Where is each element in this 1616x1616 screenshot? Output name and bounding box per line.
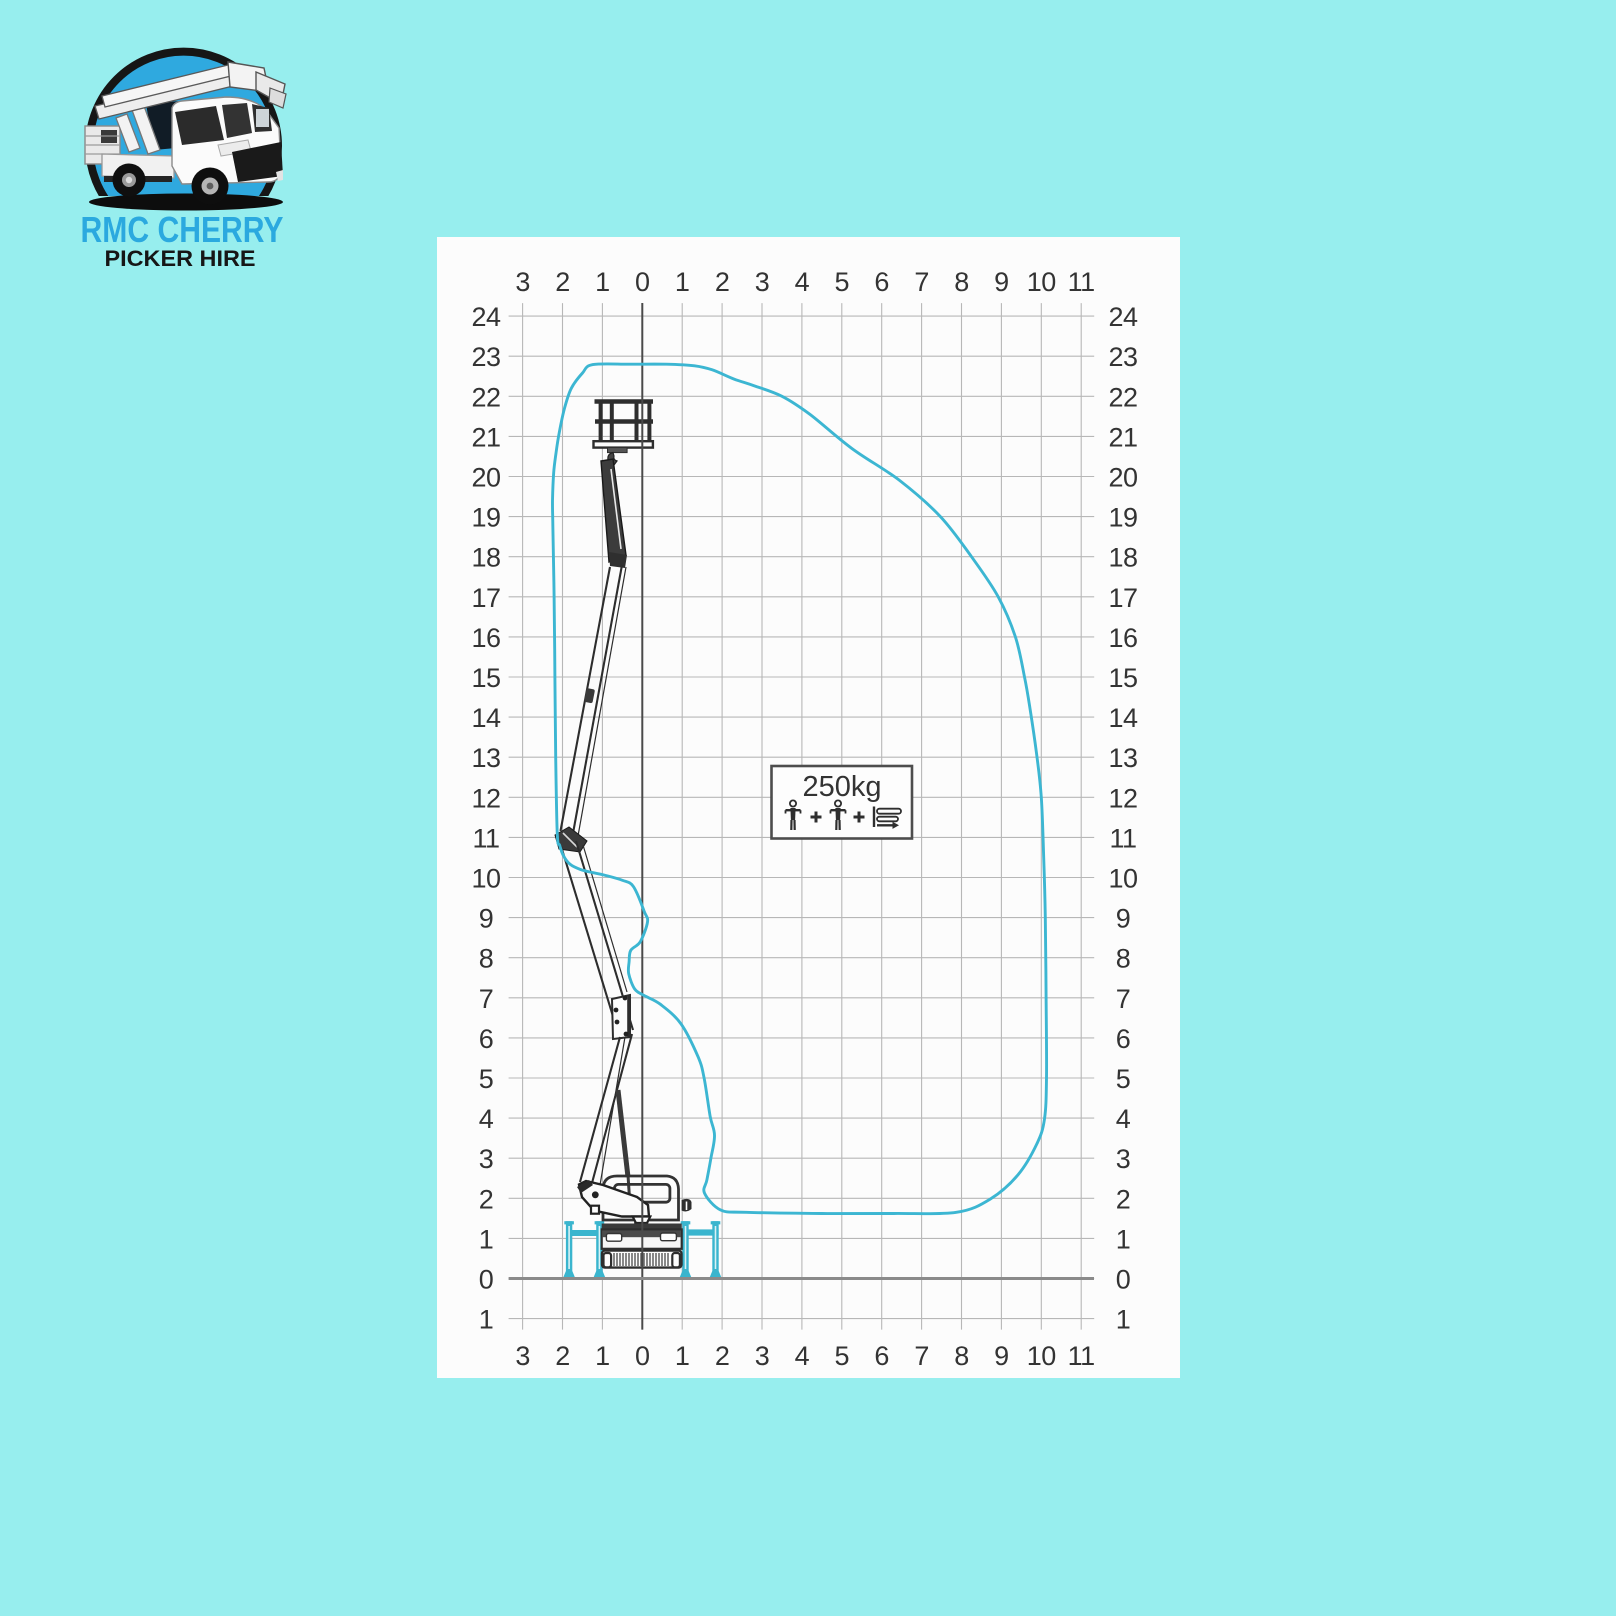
svg-text:6: 6 (874, 267, 889, 297)
svg-text:22: 22 (471, 382, 500, 412)
svg-text:3: 3 (755, 267, 770, 297)
svg-text:21: 21 (471, 422, 500, 452)
svg-text:RMC CHERRY: RMC CHERRY (81, 209, 284, 250)
svg-text:4: 4 (795, 267, 810, 297)
svg-text:12: 12 (471, 783, 500, 813)
svg-text:15: 15 (471, 663, 500, 693)
svg-text:13: 13 (1108, 743, 1137, 773)
svg-text:3: 3 (755, 1341, 770, 1371)
svg-text:22: 22 (1108, 382, 1137, 412)
svg-text:18: 18 (1108, 543, 1137, 573)
svg-text:1: 1 (595, 267, 610, 297)
svg-text:6: 6 (479, 1024, 494, 1054)
svg-text:5: 5 (479, 1064, 494, 1094)
svg-text:0: 0 (1116, 1265, 1131, 1295)
svg-text:1: 1 (479, 1224, 494, 1254)
svg-text:11: 11 (472, 823, 499, 853)
svg-text:16: 16 (471, 623, 500, 653)
svg-text:5: 5 (835, 267, 850, 297)
svg-text:11: 11 (1068, 1341, 1095, 1371)
svg-text:3: 3 (479, 1144, 494, 1174)
svg-text:23: 23 (471, 342, 500, 372)
svg-text:10: 10 (471, 864, 500, 894)
svg-text:PICKER HIRE: PICKER HIRE (105, 246, 256, 271)
svg-text:1: 1 (675, 1341, 690, 1371)
svg-text:3: 3 (515, 267, 530, 297)
svg-text:17: 17 (1108, 583, 1137, 613)
svg-text:0: 0 (479, 1265, 494, 1295)
svg-text:10: 10 (1108, 864, 1137, 894)
svg-text:6: 6 (874, 1341, 889, 1371)
svg-text:2: 2 (555, 1341, 570, 1371)
svg-text:7: 7 (914, 267, 929, 297)
svg-text:16: 16 (1108, 623, 1137, 653)
svg-text:19: 19 (471, 503, 500, 533)
svg-text:10: 10 (1027, 267, 1056, 297)
svg-text:14: 14 (1108, 703, 1138, 733)
svg-text:2: 2 (715, 1341, 730, 1371)
svg-text:4: 4 (479, 1104, 494, 1134)
svg-text:11: 11 (1109, 823, 1136, 853)
svg-text:8: 8 (479, 944, 494, 974)
svg-text:2: 2 (479, 1184, 494, 1214)
svg-text:0: 0 (635, 1341, 650, 1371)
svg-text:21: 21 (1108, 422, 1137, 452)
svg-text:24: 24 (1108, 302, 1138, 332)
svg-text:8: 8 (1116, 944, 1131, 974)
svg-text:11: 11 (1068, 267, 1095, 297)
svg-text:250kg: 250kg (802, 771, 881, 803)
svg-text:17: 17 (471, 583, 500, 613)
svg-text:1: 1 (595, 1341, 610, 1371)
svg-text:13: 13 (471, 743, 500, 773)
svg-text:5: 5 (835, 1341, 850, 1371)
svg-text:23: 23 (1108, 342, 1137, 372)
svg-text:3: 3 (515, 1341, 530, 1371)
svg-text:4: 4 (1116, 1104, 1131, 1134)
svg-text:0: 0 (635, 267, 650, 297)
svg-text:7: 7 (1116, 984, 1131, 1014)
svg-text:10: 10 (1027, 1341, 1056, 1371)
svg-text:9: 9 (1116, 904, 1131, 934)
svg-text:3: 3 (1116, 1144, 1131, 1174)
svg-text:20: 20 (1108, 463, 1137, 493)
svg-text:20: 20 (471, 463, 500, 493)
svg-text:6: 6 (1116, 1024, 1131, 1054)
svg-text:4: 4 (795, 1341, 810, 1371)
svg-text:18: 18 (471, 543, 500, 573)
svg-text:5: 5 (1116, 1064, 1131, 1094)
svg-text:1: 1 (479, 1305, 494, 1335)
svg-text:9: 9 (479, 904, 494, 934)
svg-text:9: 9 (994, 1341, 1009, 1371)
svg-text:14: 14 (471, 703, 501, 733)
svg-text:24: 24 (471, 302, 501, 332)
svg-text:15: 15 (1108, 663, 1137, 693)
svg-text:1: 1 (1116, 1305, 1131, 1335)
svg-text:9: 9 (994, 267, 1009, 297)
svg-text:1: 1 (1116, 1224, 1131, 1254)
svg-text:2: 2 (715, 267, 730, 297)
svg-text:2: 2 (1116, 1184, 1131, 1214)
svg-text:2: 2 (555, 267, 570, 297)
svg-text:12: 12 (1108, 783, 1137, 813)
svg-text:19: 19 (1108, 503, 1137, 533)
svg-text:8: 8 (954, 267, 969, 297)
svg-text:7: 7 (914, 1341, 929, 1371)
svg-text:7: 7 (479, 984, 494, 1014)
svg-text:1: 1 (675, 267, 690, 297)
svg-text:8: 8 (954, 1341, 969, 1371)
